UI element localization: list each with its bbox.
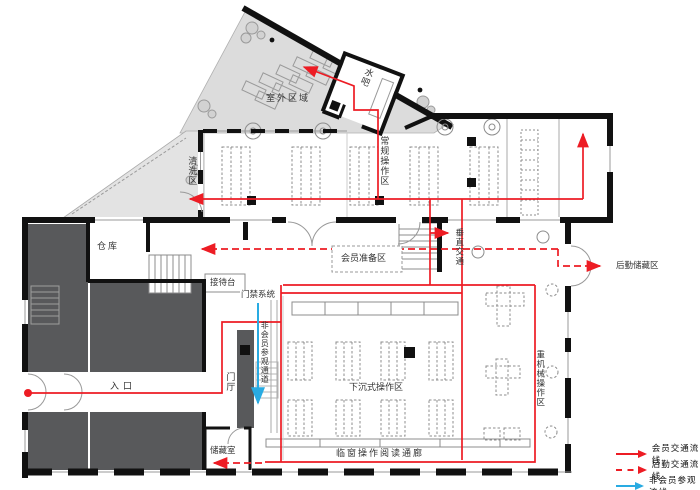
- label-member-prep-area: 会员准备区: [341, 253, 386, 263]
- label-sunken-ops-area: 下沉式操作区: [349, 382, 403, 392]
- label-outdoor-area: 室外区域: [266, 93, 310, 103]
- service-pillar: [237, 330, 254, 428]
- outdoor-terrace: [63, 8, 452, 218]
- label-foyer: 门厅: [225, 372, 235, 392]
- label-warehouse: 仓库: [97, 241, 119, 251]
- label-storage-room: 储藏室: [209, 446, 237, 456]
- logistics-flow-line-icon: [616, 469, 645, 471]
- visitor-flow-line-icon: [616, 485, 642, 487]
- label-logistics-storage: 后勤储藏区: [616, 261, 659, 271]
- floor-plan: 室外区域 水吧 清洗区 常规操作区 仓库 接待台 会员准备区 垂直交通 后勤储藏…: [0, 0, 700, 490]
- label-window-reading-corridor: 临窗操作阅读通廊: [336, 448, 424, 458]
- label-cleaning-area: 清洗区: [187, 156, 197, 186]
- label-access-control: 门禁系统: [240, 290, 276, 300]
- member-flow-line-icon: [616, 453, 645, 455]
- label-regular-ops-area: 常规操作区: [379, 136, 389, 186]
- label-vertical-circulation: 垂直交通: [454, 228, 464, 266]
- label-non-member-passage: 非会员参观通道: [260, 321, 269, 384]
- round-tables: [245, 119, 549, 258]
- label-reception-desk: 接待台: [210, 278, 236, 288]
- back-of-house-rooms: [28, 224, 254, 470]
- label-entrance: 入口: [110, 381, 136, 391]
- label-heavy-machinery-area: 重机械操作区: [535, 350, 545, 407]
- legend-label: 非会员参观流线: [649, 474, 700, 490]
- legend-item-visitor-flow: 非会员参观流线: [616, 474, 700, 490]
- machines: [484, 284, 558, 440]
